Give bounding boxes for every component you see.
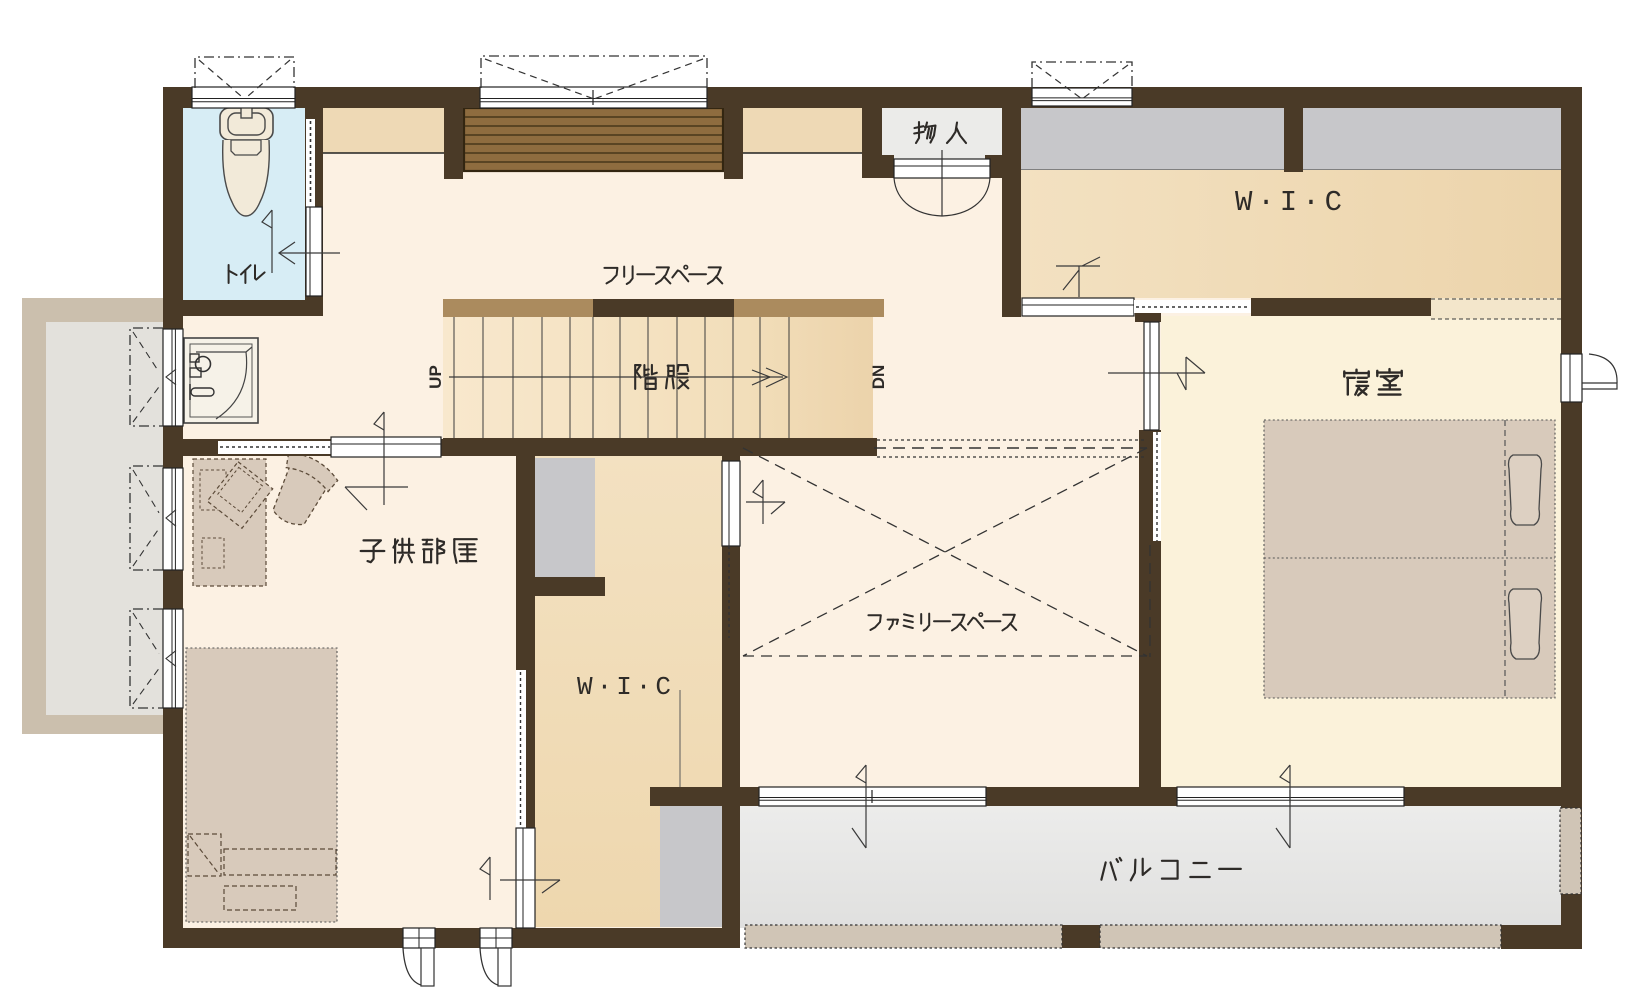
svg-text:W·I·C: W·I·C — [1235, 186, 1347, 219]
svg-text:W·I·C: W·I·C — [577, 672, 675, 702]
svg-text:UP: UP — [426, 365, 445, 389]
svg-text:DN: DN — [869, 365, 888, 390]
